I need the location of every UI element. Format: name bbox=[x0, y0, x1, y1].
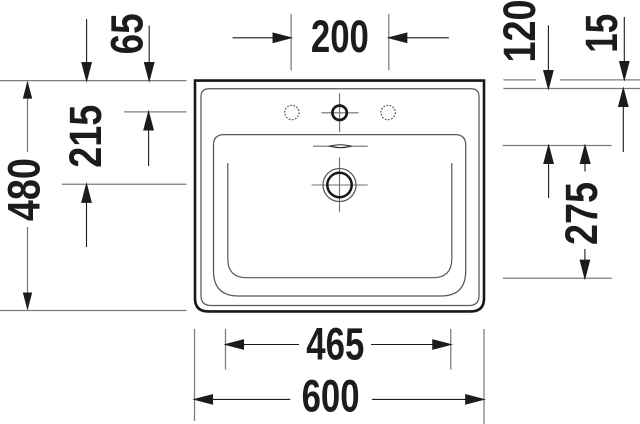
svg-text:600: 600 bbox=[302, 370, 360, 421]
svg-text:275: 275 bbox=[556, 182, 607, 245]
svg-text:200: 200 bbox=[311, 11, 369, 62]
svg-text:480: 480 bbox=[0, 158, 49, 221]
svg-text:120: 120 bbox=[494, 0, 545, 63]
svg-text:215: 215 bbox=[60, 105, 111, 168]
svg-text:15: 15 bbox=[576, 14, 627, 53]
svg-text:465: 465 bbox=[306, 318, 364, 369]
svg-text:65: 65 bbox=[101, 13, 152, 54]
